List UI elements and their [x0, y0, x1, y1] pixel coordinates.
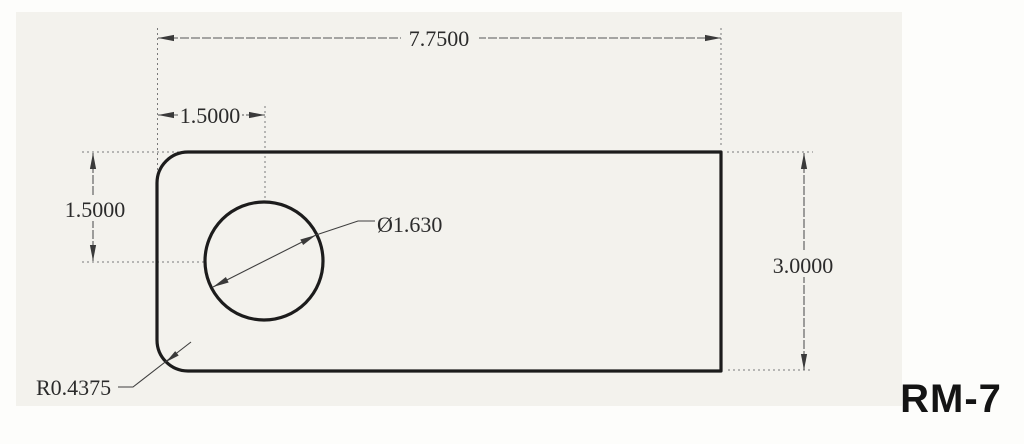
dim-label-hole-offset-y: 1.5000	[65, 197, 126, 222]
dim-label-hole-diameter: Ø1.630	[377, 212, 442, 237]
dim-label-corner-radius: R0.4375	[36, 375, 111, 400]
paper-scan-area	[16, 12, 902, 406]
dim-label-overall-height: 3.0000	[773, 253, 834, 278]
dim-label-overall-width: 7.7500	[409, 26, 470, 51]
engineering-drawing: 7.7500 1.5000 1.5000 Ø1.630 R0.4375 3.00…	[0, 0, 1024, 444]
scanned-drawing-page: 7.7500 1.5000 1.5000 Ø1.630 R0.4375 3.00…	[0, 0, 1024, 444]
part-number-label: RM-7	[900, 377, 1002, 421]
dim-label-hole-offset-x: 1.5000	[180, 103, 241, 128]
